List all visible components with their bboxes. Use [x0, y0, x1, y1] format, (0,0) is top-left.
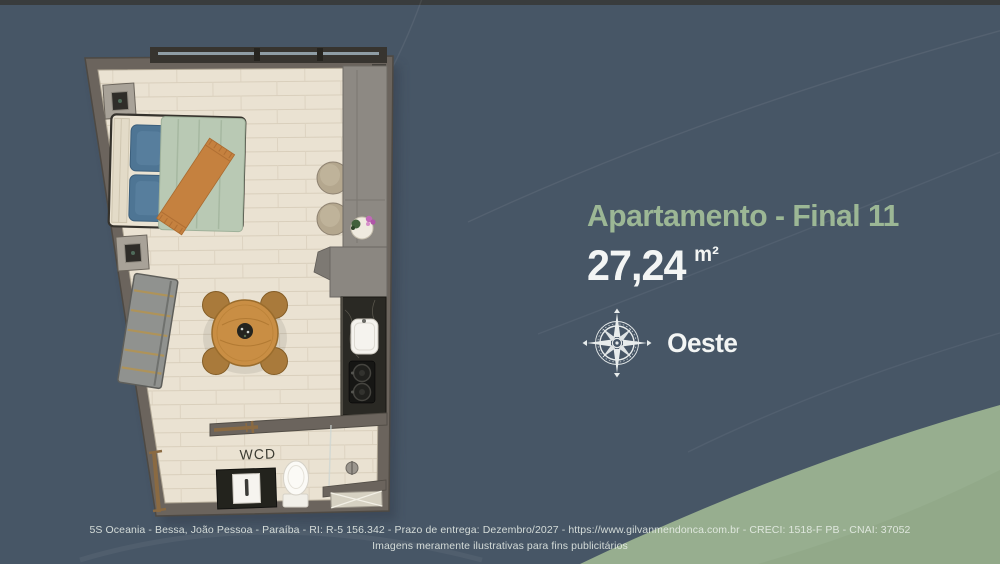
- footer-line-1: 5S Oceania - Bessa, João Pessoa - Paraíb…: [0, 523, 1000, 539]
- bathroom-label: WCD: [239, 445, 276, 462]
- nightstand-bottom: [116, 235, 149, 271]
- listing-info: Apartamento - Final 11 27,24 m²: [587, 198, 908, 380]
- kitchen-sink: [351, 319, 378, 354]
- dining-set: [203, 292, 288, 375]
- area-value: 27,24 m²: [587, 245, 896, 288]
- footer: 5S Oceania - Bessa, João Pessoa - Paraíb…: [0, 523, 1000, 554]
- page-title: Apartamento - Final 11: [587, 198, 899, 234]
- kitchen-cabinet: [330, 247, 387, 297]
- shower-drain: [331, 491, 382, 508]
- toilet: [283, 461, 309, 507]
- shower-fixture: [346, 461, 358, 475]
- area-unit: m²: [694, 244, 719, 265]
- table-centerpiece: [237, 323, 253, 339]
- top-strip: [0, 0, 1000, 5]
- area-number: 27,24: [587, 245, 686, 288]
- window: [150, 47, 387, 63]
- cooktop: [349, 361, 375, 403]
- footer-line-2: Imagens meramente ilustrativas para fins…: [0, 539, 1000, 555]
- marketing-slide: WCD: [0, 0, 1000, 564]
- orientation-label: Oeste: [667, 328, 737, 359]
- compass-icon: [580, 306, 654, 380]
- orientation: Oeste: [580, 306, 908, 380]
- bed: [108, 114, 245, 236]
- vanity: [216, 468, 276, 509]
